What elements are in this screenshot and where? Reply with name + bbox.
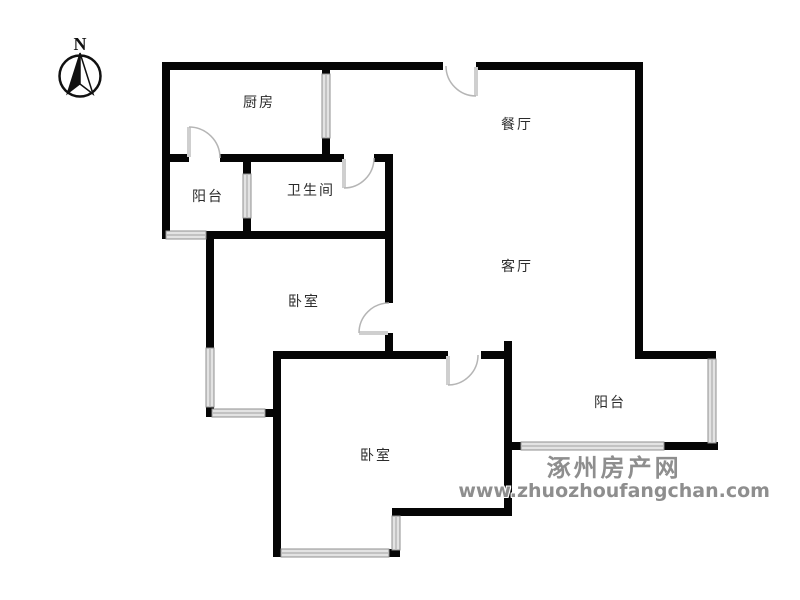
floor-plan-page: 厨房 餐厅 阳台 卫生间 卧室 客厅 阳台 卧室 N 涿州房产网 www.zhu… bbox=[0, 0, 800, 600]
bathroom-door-arc bbox=[344, 158, 374, 188]
room-label-bedroom-south: 卧室 bbox=[360, 445, 392, 465]
room-label-balcony-north: 阳台 bbox=[192, 186, 224, 206]
watermark: 涿州房产网 www.zhuozhoufangchan.com bbox=[458, 456, 770, 502]
doors bbox=[189, 66, 478, 385]
room-label-balcony-south: 阳台 bbox=[594, 392, 626, 412]
bedroom-west-door-arc bbox=[359, 303, 389, 333]
kitchen-balcony-door-arc bbox=[189, 127, 220, 158]
room-label-dining-room: 餐厅 bbox=[501, 114, 533, 134]
watermark-site-name: 涿州房产网 bbox=[458, 456, 770, 481]
compass-north-label: N bbox=[74, 34, 87, 55]
room-label-kitchen: 厨房 bbox=[243, 92, 275, 112]
bedroom-south-door-arc bbox=[448, 355, 478, 385]
room-label-living-room: 客厅 bbox=[501, 256, 533, 276]
room-label-bedroom-west: 卧室 bbox=[288, 291, 320, 311]
compass-icon bbox=[60, 53, 101, 97]
entrance-door-arc bbox=[446, 66, 476, 96]
watermark-site-url: www.zhuozhoufangchan.com bbox=[458, 482, 770, 502]
room-label-bathroom: 卫生间 bbox=[287, 180, 335, 200]
floor-plan-drawing bbox=[0, 0, 800, 600]
